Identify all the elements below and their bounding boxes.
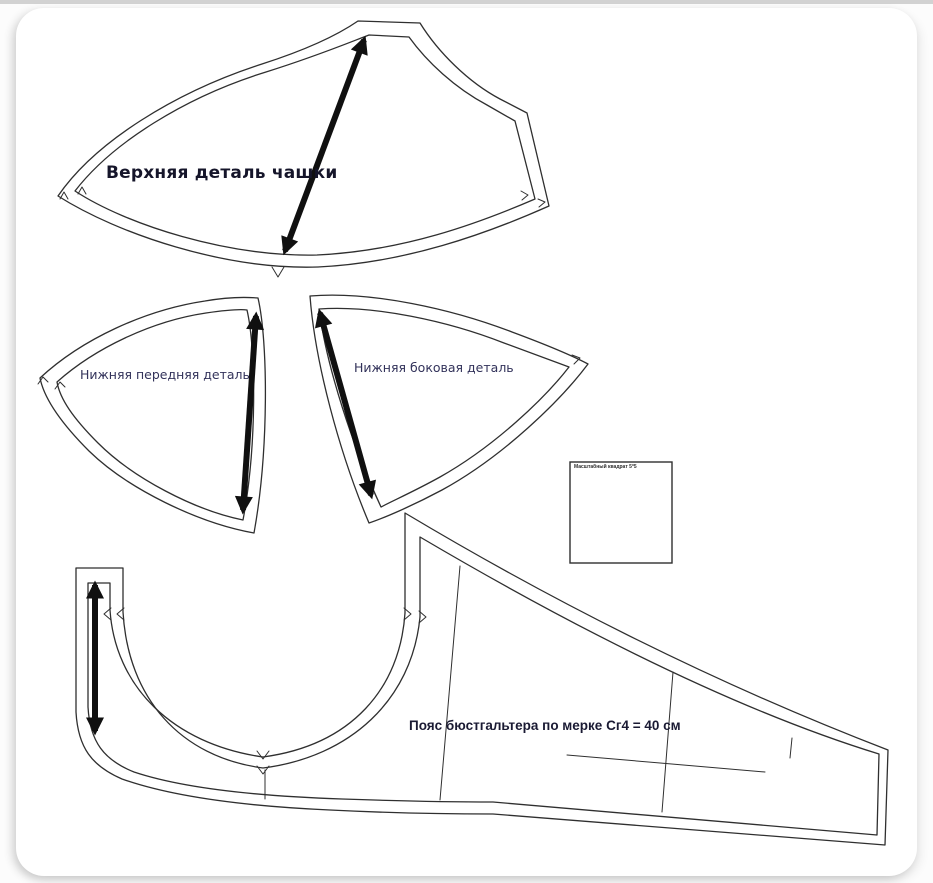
band-notches bbox=[104, 608, 426, 774]
lower-front-stitch-line bbox=[57, 310, 254, 520]
upper-cup-grainline-arrow bbox=[285, 40, 364, 251]
lower-front-piece bbox=[38, 297, 265, 533]
scale-square-outline bbox=[570, 462, 672, 563]
band-stitch-line bbox=[88, 537, 879, 835]
band-piece bbox=[76, 513, 888, 845]
upper-cup-stitch-line bbox=[75, 35, 535, 255]
upper-cup-cut-line bbox=[58, 21, 549, 267]
band-style-lines bbox=[265, 566, 792, 812]
lower-side-label: Нижняя боковая деталь bbox=[354, 360, 514, 375]
lower-side-cut-line bbox=[310, 295, 588, 523]
scale-square bbox=[570, 462, 672, 563]
upper-cup-label: Верхняя деталь чашки bbox=[106, 163, 337, 183]
lower-side-grainline-arrow bbox=[320, 313, 371, 495]
band-cut-line bbox=[76, 513, 888, 845]
lower-side-stitch-line bbox=[319, 308, 569, 507]
band-label: Пояс бюстгальтера по мерке Сг4 = 40 см bbox=[409, 718, 681, 733]
lower-side-piece bbox=[310, 295, 588, 523]
pattern-drawing bbox=[0, 0, 933, 883]
pattern-sheet: Верхняя деталь чашки Нижняя передняя дет… bbox=[0, 0, 933, 883]
lower-front-label: Нижняя передняя деталь bbox=[80, 367, 250, 382]
scale-square-label: Масштабный квадрат 5*5 bbox=[574, 464, 668, 470]
upper-cup-piece bbox=[58, 21, 549, 277]
